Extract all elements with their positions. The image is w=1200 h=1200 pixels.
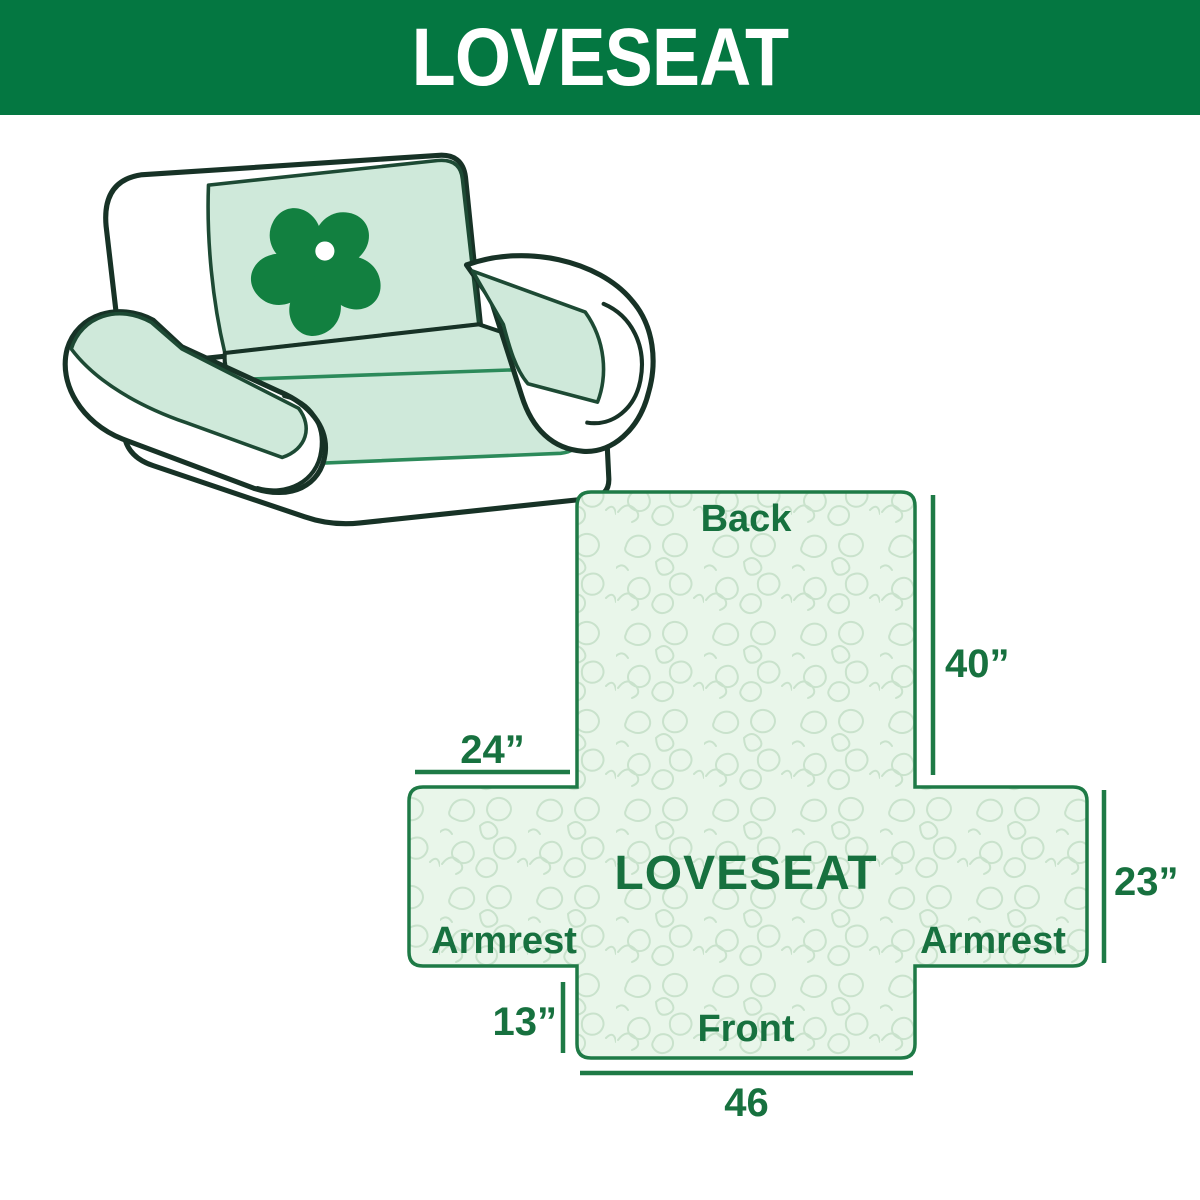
front-section-label: Front <box>577 1010 915 1048</box>
dim-armrest-side-height: 23” <box>1114 862 1179 902</box>
dim-front-width: 46 <box>580 1083 913 1123</box>
armrest-right-label: Armrest <box>898 922 1088 960</box>
center-section-label: LOVESEAT <box>577 850 915 898</box>
armrest-left-label: Armrest <box>409 922 599 960</box>
dim-front-skirt-height: 13” <box>467 1002 557 1042</box>
cover-layout-shape <box>409 492 1087 1058</box>
dim-armrest-top-width: 24” <box>415 730 570 770</box>
back-section-label: Back <box>577 500 915 538</box>
page: LOVESEAT <box>0 0 1200 1200</box>
dim-back-height: 40” <box>945 644 1010 684</box>
